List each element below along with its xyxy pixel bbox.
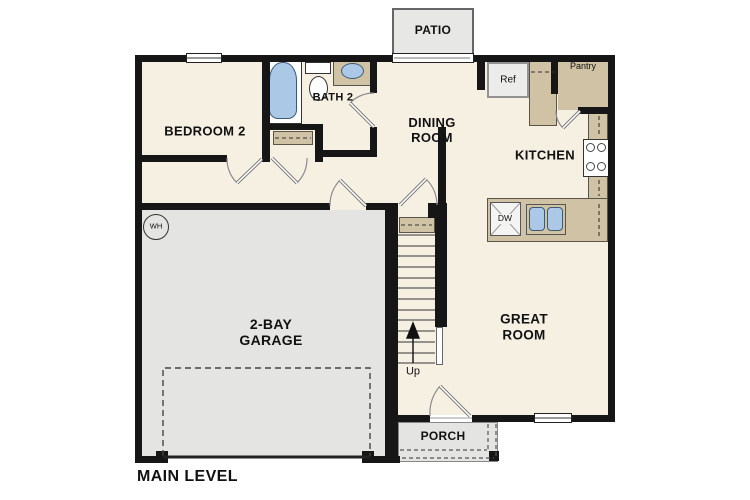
wall [435, 203, 447, 327]
wall [142, 155, 227, 162]
wall [262, 124, 323, 130]
wh-label: WH [150, 223, 163, 232]
porch-label: PORCH [421, 430, 466, 444]
patio-slider-door [392, 53, 474, 63]
garage-door-jamb [362, 451, 374, 463]
kitchen-label: KITCHEN [515, 149, 575, 164]
wall [551, 58, 558, 94]
stove [583, 139, 609, 177]
porch-post [489, 451, 499, 461]
patio-label: PATIO [415, 24, 451, 38]
toilet-tank [305, 62, 331, 74]
bedroom2-label: BEDROOM 2 [164, 125, 245, 140]
bathtub [269, 62, 297, 119]
wall [477, 62, 485, 90]
wall [398, 415, 430, 422]
sink-basin [547, 207, 563, 231]
garage-door-jamb [156, 451, 168, 463]
wall [135, 55, 186, 62]
bath2-label: BATH 2 [313, 92, 354, 105]
dining-room-label: DINING ROOM [408, 116, 455, 146]
burner-icon [586, 162, 595, 171]
floor-plan: PATIO BEDROOM 2 BATH 2 DINING ROOM KITCH… [0, 0, 750, 500]
wall [323, 150, 370, 157]
wall [366, 203, 398, 210]
wall [370, 62, 377, 93]
burner-icon [597, 143, 606, 152]
wall [370, 127, 377, 157]
sink-basin [529, 207, 545, 231]
wall [315, 124, 323, 162]
kitchen-sink [526, 204, 566, 235]
great-room-window [534, 413, 572, 423]
dw-label: DW [497, 214, 513, 224]
hall-closet-shelf [273, 131, 313, 145]
wall [572, 415, 615, 422]
wall [608, 55, 615, 422]
main-level-title: MAIN LEVEL [137, 468, 238, 486]
great-room-label: GREAT ROOM [500, 311, 548, 342]
burner-icon [597, 162, 606, 171]
stair-railing [436, 327, 443, 365]
wall [142, 203, 330, 210]
wall [578, 107, 608, 114]
wall [222, 55, 392, 62]
wall [135, 55, 142, 463]
up-label: Up [406, 366, 420, 379]
stair-closet-shelf [399, 217, 435, 233]
wall [472, 415, 534, 422]
ref-label: Ref [500, 74, 516, 86]
wall [262, 62, 270, 162]
bedroom-window [186, 53, 222, 63]
garage-label: 2-BAY GARAGE [239, 316, 302, 348]
wall [385, 203, 398, 463]
pantry-label: Pantry [570, 61, 596, 71]
bath-sink [341, 63, 364, 79]
burner-icon [586, 143, 595, 152]
